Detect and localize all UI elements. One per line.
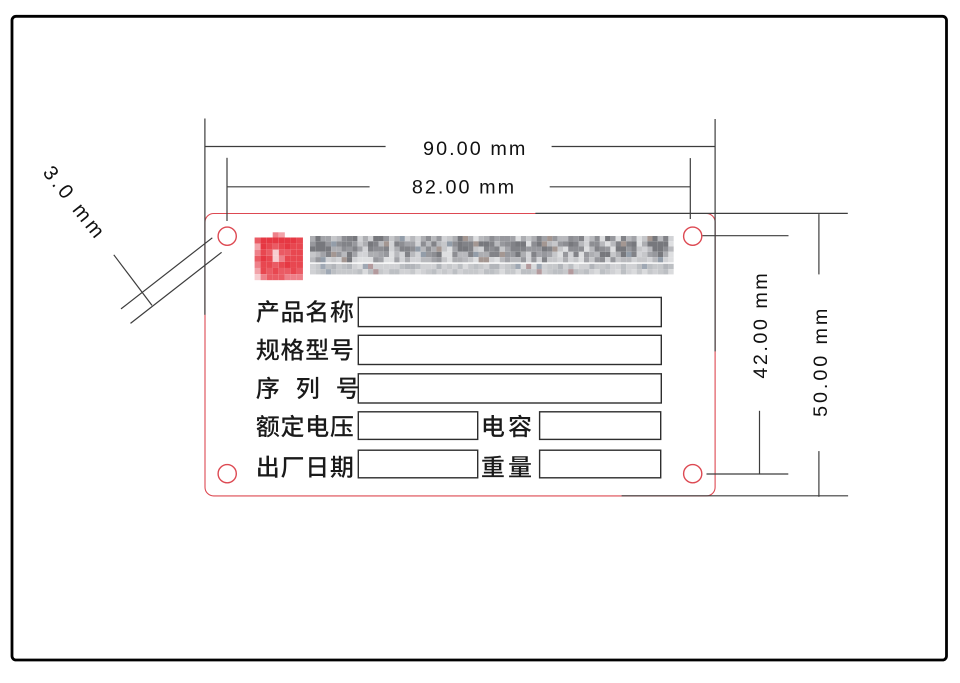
svg-text:50.00 mm: 50.00 mm [810, 306, 832, 417]
svg-text:82.00 mm: 82.00 mm [412, 177, 516, 199]
svg-text:3.0 mm: 3.0 mm [38, 162, 110, 245]
svg-text:90.00 mm: 90.00 mm [423, 138, 527, 160]
svg-text:42.00 mm: 42.00 mm [750, 271, 772, 379]
